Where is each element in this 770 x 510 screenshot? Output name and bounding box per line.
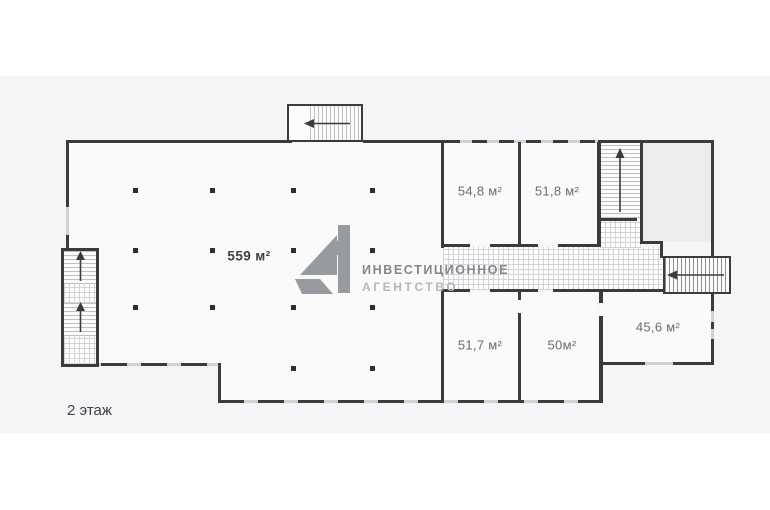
column xyxy=(133,188,138,193)
room-51-8-area-label: 51,8 м² xyxy=(535,184,579,199)
column xyxy=(291,366,296,371)
wall-top-middle xyxy=(363,140,445,143)
shaded-area-fill xyxy=(642,143,712,242)
column xyxy=(210,248,215,253)
column xyxy=(210,305,215,310)
wall-corridor-bottom-3 xyxy=(553,289,601,292)
watermark-agency-name: ИНВЕСТИЦИОННОЕ xyxy=(362,263,509,277)
column xyxy=(133,305,138,310)
wall-top-windows xyxy=(445,140,598,143)
wall-bottom-windows xyxy=(218,400,603,403)
wall-corridor-bottom-2 xyxy=(490,289,538,292)
window-left-wall xyxy=(66,207,69,235)
column xyxy=(291,305,296,310)
a1-logo-icon xyxy=(295,221,352,294)
wall-left-upper xyxy=(66,140,69,207)
wall-corridor-top-1 xyxy=(443,244,470,247)
wall-right-lower xyxy=(711,292,714,364)
corridor-vestibule-hatched-area xyxy=(600,220,641,248)
wall-stairs-shaded-area xyxy=(640,142,643,243)
wall-top-left xyxy=(66,140,292,143)
column xyxy=(133,248,138,253)
column xyxy=(370,305,375,310)
room-51-7-area-label: 51,7 м² xyxy=(458,338,502,353)
watermark-agency-type: АГЕНТСТВО xyxy=(362,280,458,294)
wall-right-upper xyxy=(711,142,714,258)
wall-vestibule-left xyxy=(598,221,601,247)
wall-hall-right-lower xyxy=(441,289,444,403)
door-room-50 xyxy=(518,300,521,313)
wall-top-right-stairs-bottom xyxy=(600,218,637,221)
wall-bottom-step xyxy=(218,363,221,403)
arrow-up-icon xyxy=(74,302,87,334)
wall-corridor-top-2 xyxy=(490,244,538,247)
arrow-left-icon xyxy=(666,268,726,282)
column xyxy=(370,366,375,371)
room-54-8-area-label: 54,8 м² xyxy=(458,184,502,199)
arrow-up-icon xyxy=(613,148,627,214)
floor-plan: ИНВЕСТИЦИОННОЕ АГЕНТСТВО 559 м² 54,8 м² … xyxy=(0,0,770,510)
column xyxy=(291,188,296,193)
window-room-45-6-bottom xyxy=(645,362,673,365)
column xyxy=(370,188,375,193)
door-room-45-6 xyxy=(599,303,603,316)
window-right-wall-2 xyxy=(711,329,714,339)
wall-between-top-rooms xyxy=(518,142,521,245)
arrow-left-icon xyxy=(304,117,352,130)
main-hall-area-label: 559 м² xyxy=(227,249,270,264)
room-45-6-area-label: 45,6 м² xyxy=(636,320,680,335)
stairs-left-landing-2 xyxy=(64,336,96,364)
wall-hall-right-upper xyxy=(441,142,444,248)
wall-corridor-top-3 xyxy=(558,244,598,247)
floor-label: 2 этаж xyxy=(67,402,112,419)
floor-plan-page: ИНВЕСТИЦИОННОЕ АГЕНТСТВО 559 м² 54,8 м² … xyxy=(0,0,770,510)
stairs-left-landing-1 xyxy=(64,284,96,303)
column xyxy=(370,248,375,253)
column xyxy=(210,188,215,193)
room-50-area-label: 50м² xyxy=(548,338,577,353)
main-hall-fill-lower xyxy=(221,365,443,401)
arrow-up-icon xyxy=(74,251,87,283)
window-right-wall-1 xyxy=(711,311,714,322)
